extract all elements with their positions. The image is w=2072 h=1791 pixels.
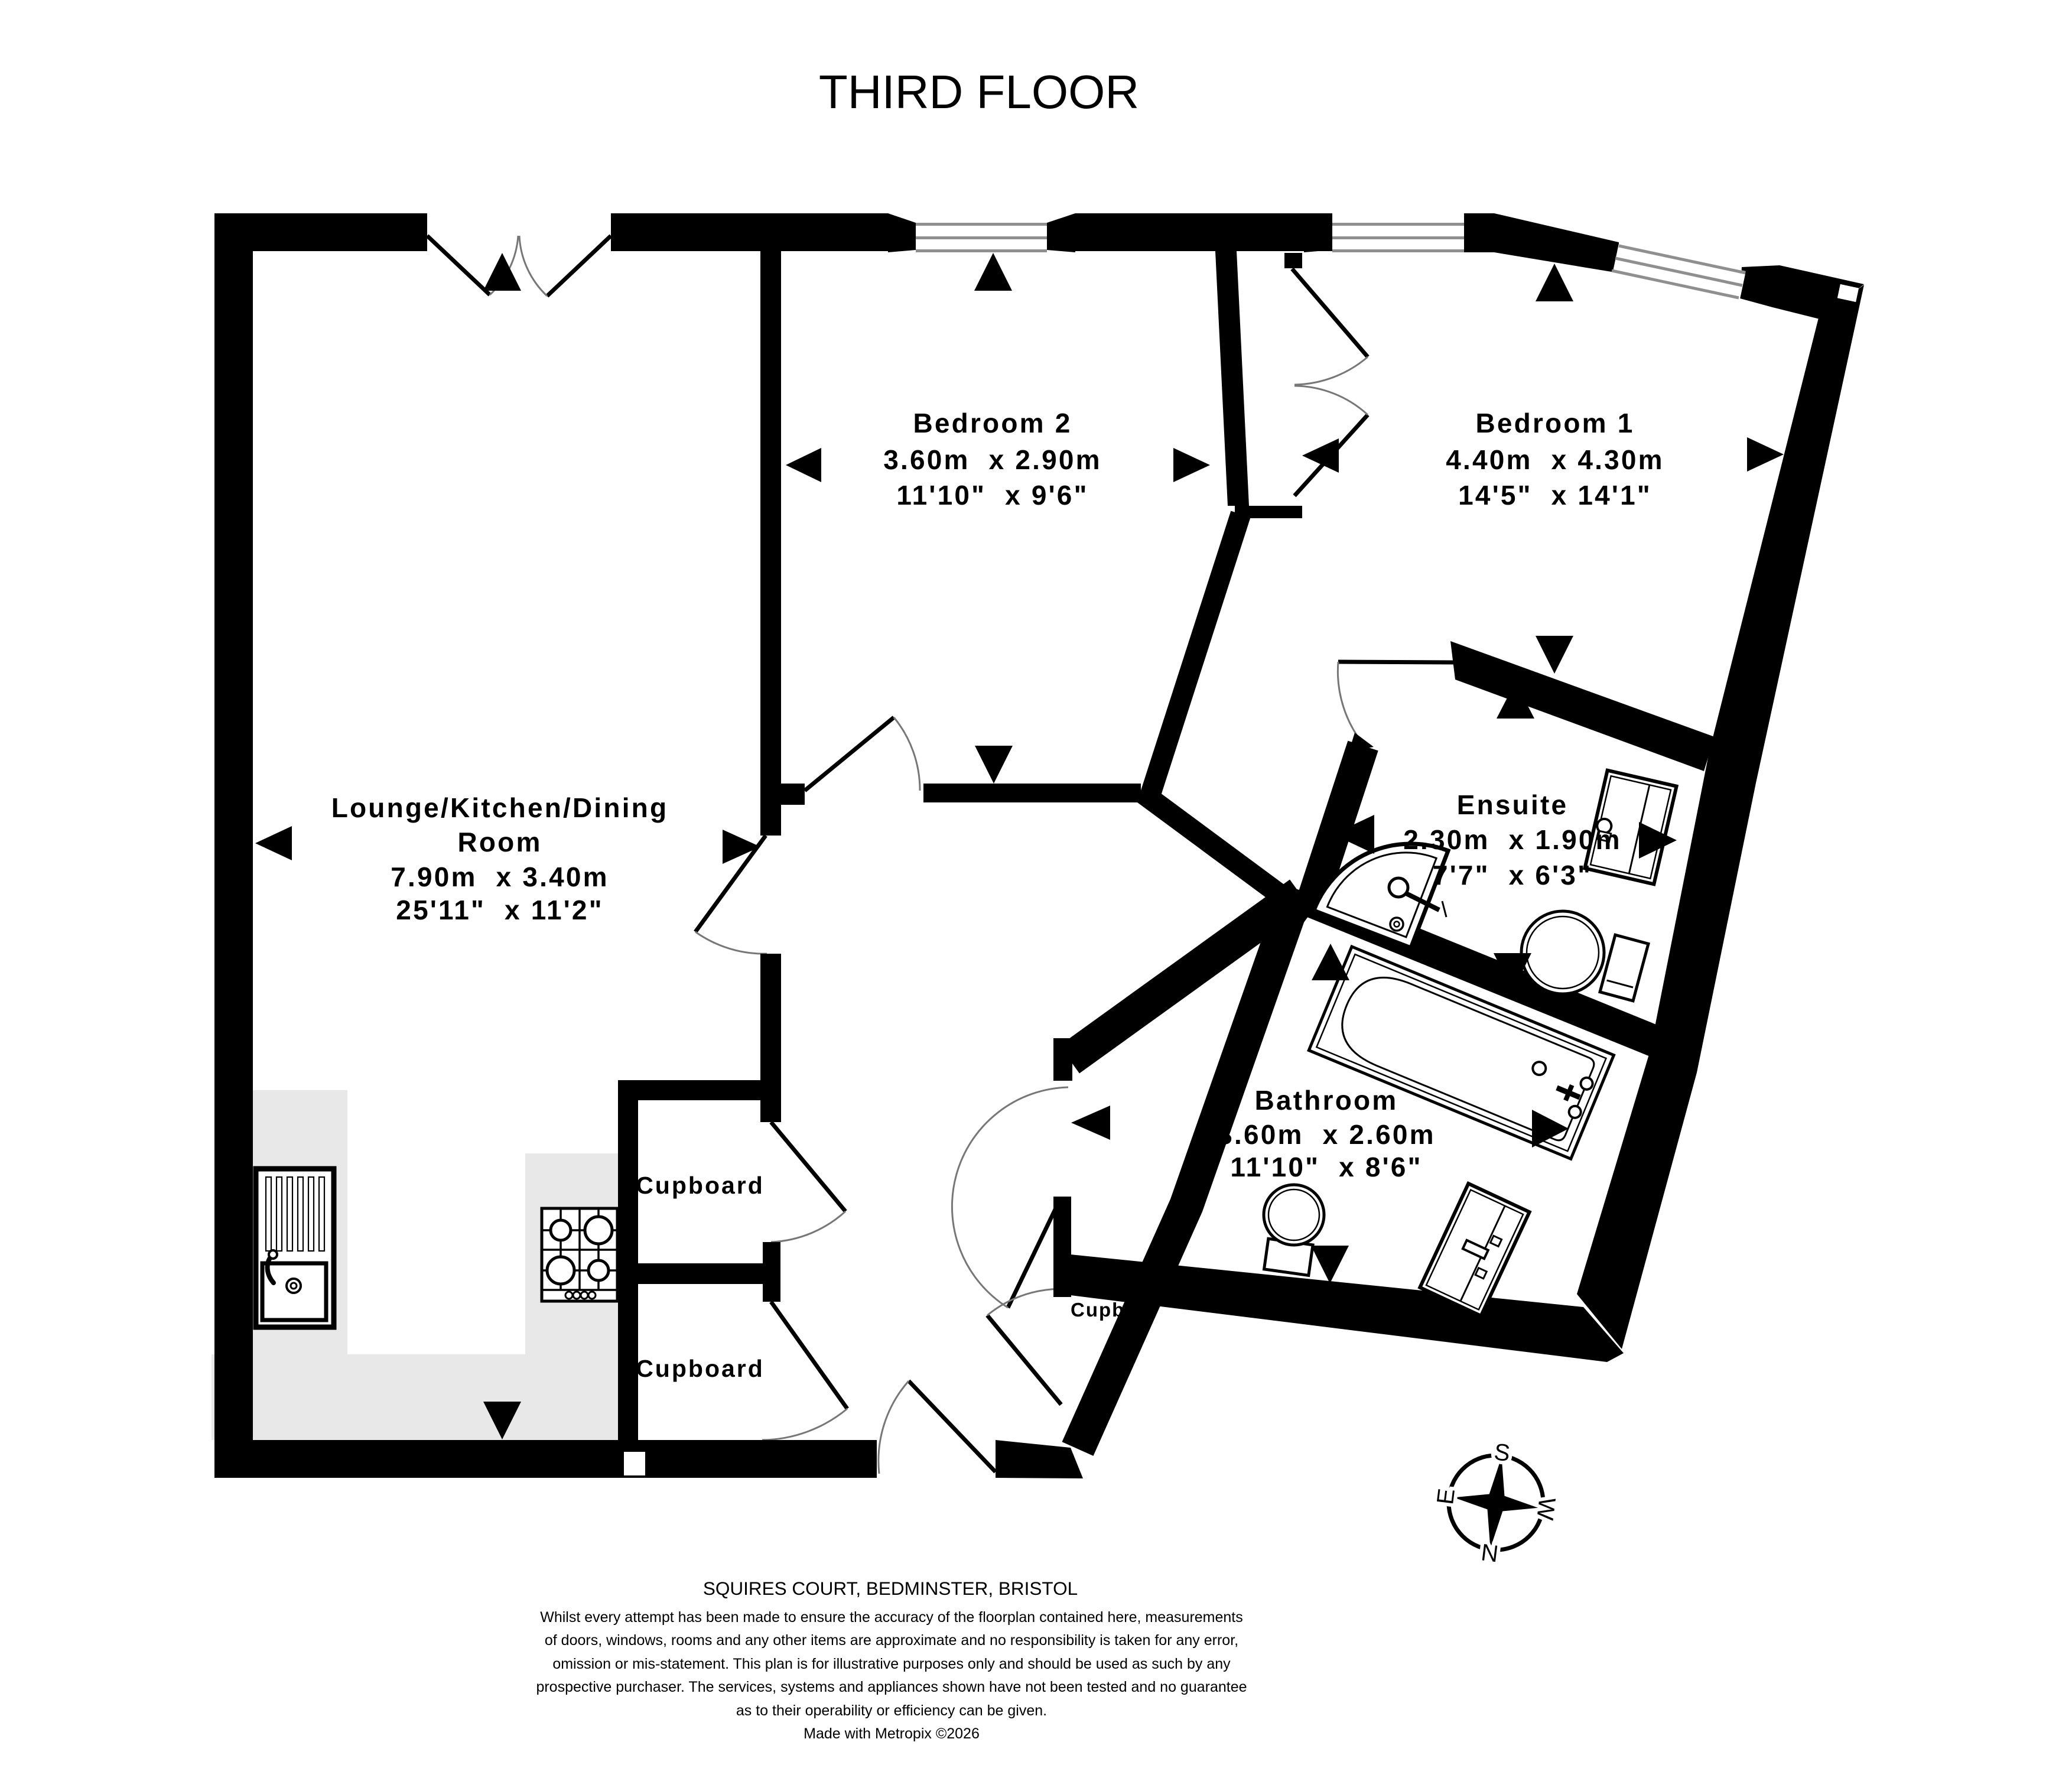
svg-text:E: E xyxy=(1432,1487,1460,1506)
svg-text:4.40m x 4.30m: 4.40m x 4.30m xyxy=(1446,444,1664,475)
svg-text:3.60m x 2.60m: 3.60m x 2.60m xyxy=(1217,1119,1436,1150)
svg-text:W: W xyxy=(1531,1496,1560,1522)
svg-text:as to their operability or eff: as to their operability or efficiency ca… xyxy=(736,1702,1047,1719)
svg-text:Made with Metropix ©2026: Made with Metropix ©2026 xyxy=(804,1725,980,1742)
svg-text:7'7" x 6'3": 7'7" x 6'3" xyxy=(1433,860,1592,890)
svg-text:S: S xyxy=(1492,1439,1511,1467)
svg-text:Lounge/Kitchen/Dining: Lounge/Kitchen/Dining xyxy=(331,792,669,823)
svg-text:Bathroom: Bathroom xyxy=(1255,1085,1398,1116)
svg-text:omission or mis-statement. Thi: omission or mis-statement. This plan is … xyxy=(552,1656,1231,1672)
svg-text:25'11" x 11'2": 25'11" x 11'2" xyxy=(396,895,603,925)
svg-text:11'10" x 9'6": 11'10" x 9'6" xyxy=(896,480,1088,511)
svg-text:11'10" x 8'6": 11'10" x 8'6" xyxy=(1230,1152,1422,1182)
svg-text:prospective purchaser. The ser: prospective purchaser. The services, sys… xyxy=(536,1679,1247,1695)
svg-text:14'5" x 14'1": 14'5" x 14'1" xyxy=(1458,480,1652,511)
svg-text:7.90m x 3.40m: 7.90m x 3.40m xyxy=(391,862,609,892)
svg-text:Ensuite: Ensuite xyxy=(1457,789,1569,820)
svg-text:Bedroom 2: Bedroom 2 xyxy=(913,408,1072,438)
svg-text:Whilst every attempt has been: Whilst every attempt has been made to en… xyxy=(540,1609,1243,1626)
svg-text:SQUIRES COURT, BEDMINSTER, BRI: SQUIRES COURT, BEDMINSTER, BRISTOL xyxy=(703,1578,1078,1599)
svg-text:Room: Room xyxy=(457,827,542,857)
svg-text:Cupboard: Cupboard xyxy=(636,1172,765,1199)
svg-text:3.60m x 2.90m: 3.60m x 2.90m xyxy=(883,444,1102,475)
svg-text:2.30m x 1.90m: 2.30m x 1.90m xyxy=(1403,824,1622,855)
svg-text:Bedroom 1: Bedroom 1 xyxy=(1475,408,1634,438)
svg-text:of doors, windows, rooms and a: of doors, windows, rooms and any other i… xyxy=(545,1632,1238,1649)
svg-text:THIRD FLOOR: THIRD FLOOR xyxy=(819,66,1139,118)
svg-text:N: N xyxy=(1480,1539,1500,1566)
svg-text:Cupboard: Cupboard xyxy=(636,1355,765,1382)
